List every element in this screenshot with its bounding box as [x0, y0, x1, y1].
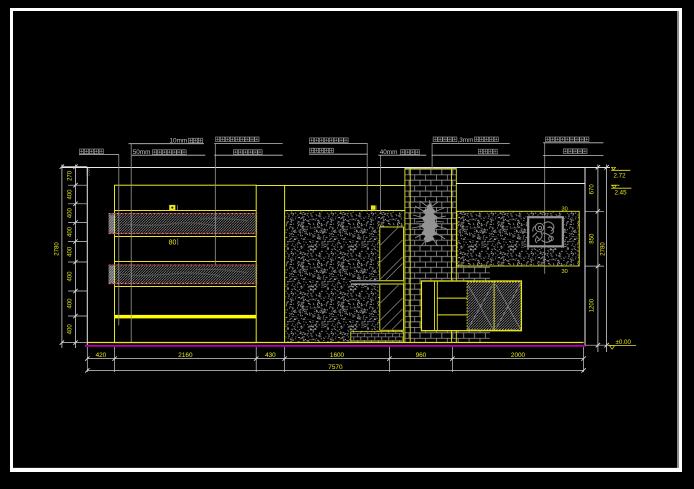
svg-text:2.45: 2.45 [615, 190, 628, 197]
svg-text:850: 850 [590, 233, 596, 244]
svg-text:±0.00: ±0.00 [616, 339, 632, 346]
svg-text:1600: 1600 [330, 352, 345, 359]
svg-text:400: 400 [68, 246, 74, 257]
svg-text:30: 30 [562, 206, 568, 212]
svg-text:960: 960 [416, 352, 427, 359]
svg-text:7570: 7570 [328, 364, 343, 371]
svg-text:400: 400 [68, 208, 74, 219]
svg-text:420: 420 [96, 352, 107, 359]
svg-text:430: 430 [265, 352, 276, 359]
svg-text:1200: 1200 [590, 298, 596, 312]
svg-text:2160: 2160 [178, 352, 193, 359]
svg-text:670: 670 [590, 184, 596, 195]
svg-text:270: 270 [68, 170, 74, 181]
svg-text:400: 400 [68, 324, 74, 335]
svg-text:400: 400 [68, 226, 74, 237]
svg-text:400: 400 [68, 189, 74, 200]
svg-text:80: 80 [169, 239, 177, 246]
svg-text:400: 400 [68, 271, 74, 282]
svg-text:2780: 2780 [600, 242, 606, 256]
svg-text:30: 30 [562, 269, 568, 275]
svg-text:2.72: 2.72 [614, 172, 627, 179]
svg-text:2000: 2000 [511, 352, 526, 359]
svg-text:2780: 2780 [55, 242, 61, 256]
svg-text:400: 400 [68, 298, 74, 309]
svg-text:,3mm: ,3mm [458, 137, 474, 144]
